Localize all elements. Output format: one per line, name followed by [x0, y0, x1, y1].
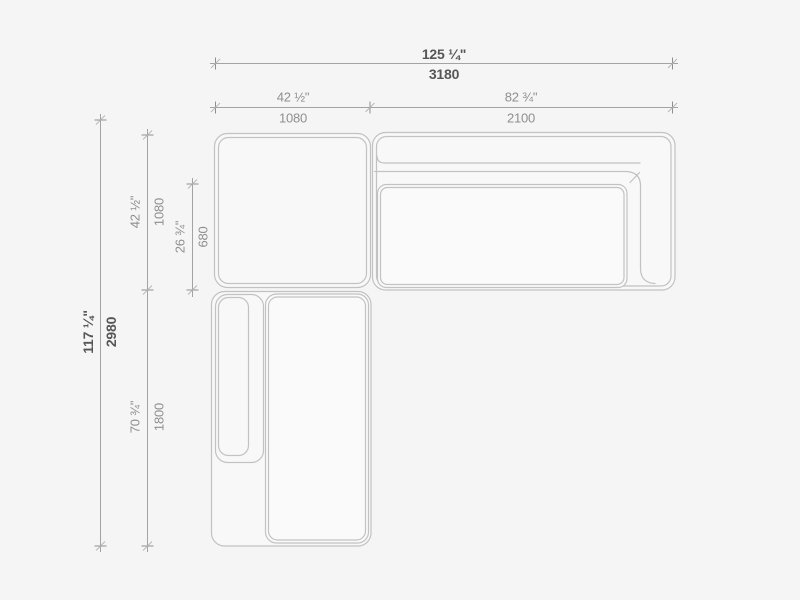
dim-top-depth-mm: 1080 [153, 198, 166, 226]
dim-overall-width-inches: 125 ¼" [422, 47, 466, 61]
corner-module [215, 134, 371, 288]
dim-chaise-depth-inches: 70 ¾" [129, 401, 142, 434]
dim-right-width-inches: 82 ¾" [505, 91, 538, 104]
dim-top-depth-inches: 42 ½" [129, 196, 142, 229]
drawing-linework [0, 0, 800, 600]
sofa-outline [212, 133, 676, 547]
dimension-ticks [95, 58, 678, 551]
chaise-module [212, 292, 372, 547]
chaise-arm-outline [216, 295, 264, 463]
sofa-seat-cushion [378, 185, 628, 288]
dim-left-width-inches: 42 ½" [277, 91, 310, 104]
sofa-module [373, 133, 676, 291]
dim-overall-depth-inches: 117 ¼" [81, 310, 95, 354]
dimension-drawing: 125 ¼" 3180 42 ½" 1080 82 ¾" 2100 117 ¼"… [0, 0, 800, 600]
dim-right-width-mm: 2100 [507, 112, 535, 125]
dim-overall-width-mm: 3180 [429, 67, 459, 81]
dim-seat-depth-mm: 680 [197, 226, 210, 247]
dim-seat-depth-inches: 26 ¾" [174, 221, 187, 254]
dim-overall-depth-mm: 2980 [104, 317, 118, 347]
chaise-seat-cushion [266, 294, 369, 543]
corner-module-outline [215, 134, 371, 288]
dim-chaise-depth-mm: 1800 [153, 403, 166, 431]
dim-left-width-mm: 1080 [279, 112, 307, 125]
